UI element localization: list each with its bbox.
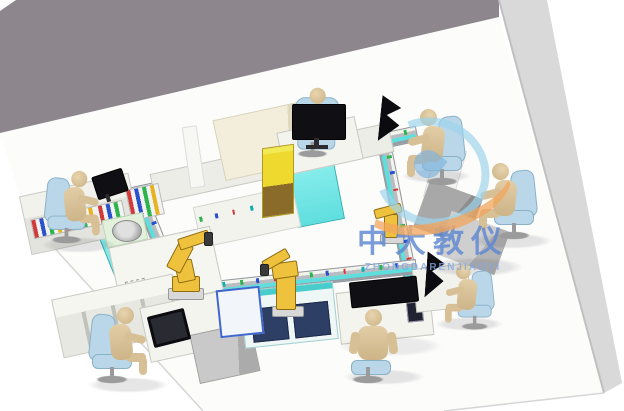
articulated-robot-right bbox=[368, 198, 412, 244]
chair-base bbox=[492, 230, 536, 241]
head bbox=[117, 307, 134, 324]
operator-bottom-left bbox=[86, 298, 156, 393]
torso bbox=[420, 125, 446, 163]
monitor-top-center bbox=[292, 104, 346, 140]
head bbox=[420, 109, 437, 126]
operator-top-left bbox=[42, 162, 109, 252]
chair-base bbox=[292, 149, 334, 159]
articulated-robot-left bbox=[142, 232, 218, 302]
torso bbox=[108, 323, 134, 361]
operator-bottom-center bbox=[342, 298, 412, 393]
robot-tool bbox=[260, 264, 269, 276]
arm bbox=[387, 331, 399, 354]
chair-base bbox=[420, 176, 464, 187]
operator-right bbox=[470, 154, 540, 249]
torso bbox=[358, 326, 388, 360]
torso bbox=[456, 278, 478, 310]
chair-base bbox=[346, 374, 390, 385]
torso bbox=[63, 186, 87, 222]
head bbox=[456, 265, 470, 279]
robot-tool bbox=[204, 232, 213, 246]
robot-body bbox=[384, 214, 398, 238]
leg bbox=[479, 213, 487, 231]
head bbox=[492, 163, 509, 180]
chair-base bbox=[90, 374, 134, 385]
articulated-robot-bottom-center bbox=[260, 250, 316, 316]
blue-frame-unit bbox=[216, 286, 265, 338]
leg bbox=[139, 357, 147, 375]
head bbox=[71, 171, 87, 187]
head bbox=[365, 309, 382, 326]
render-canvas: 中大教仪 ZHONGDARENJIAOYI bbox=[0, 0, 624, 411]
leg bbox=[407, 159, 415, 177]
leg bbox=[92, 218, 100, 235]
leg bbox=[445, 307, 452, 322]
chair-base bbox=[46, 235, 88, 245]
chair-base bbox=[456, 322, 493, 331]
operator-upper-right bbox=[398, 100, 468, 195]
monitor-base bbox=[306, 145, 328, 149]
torso bbox=[492, 179, 518, 217]
chair-seat bbox=[351, 360, 391, 375]
head bbox=[310, 88, 326, 104]
operator-mid-right bbox=[437, 257, 497, 338]
